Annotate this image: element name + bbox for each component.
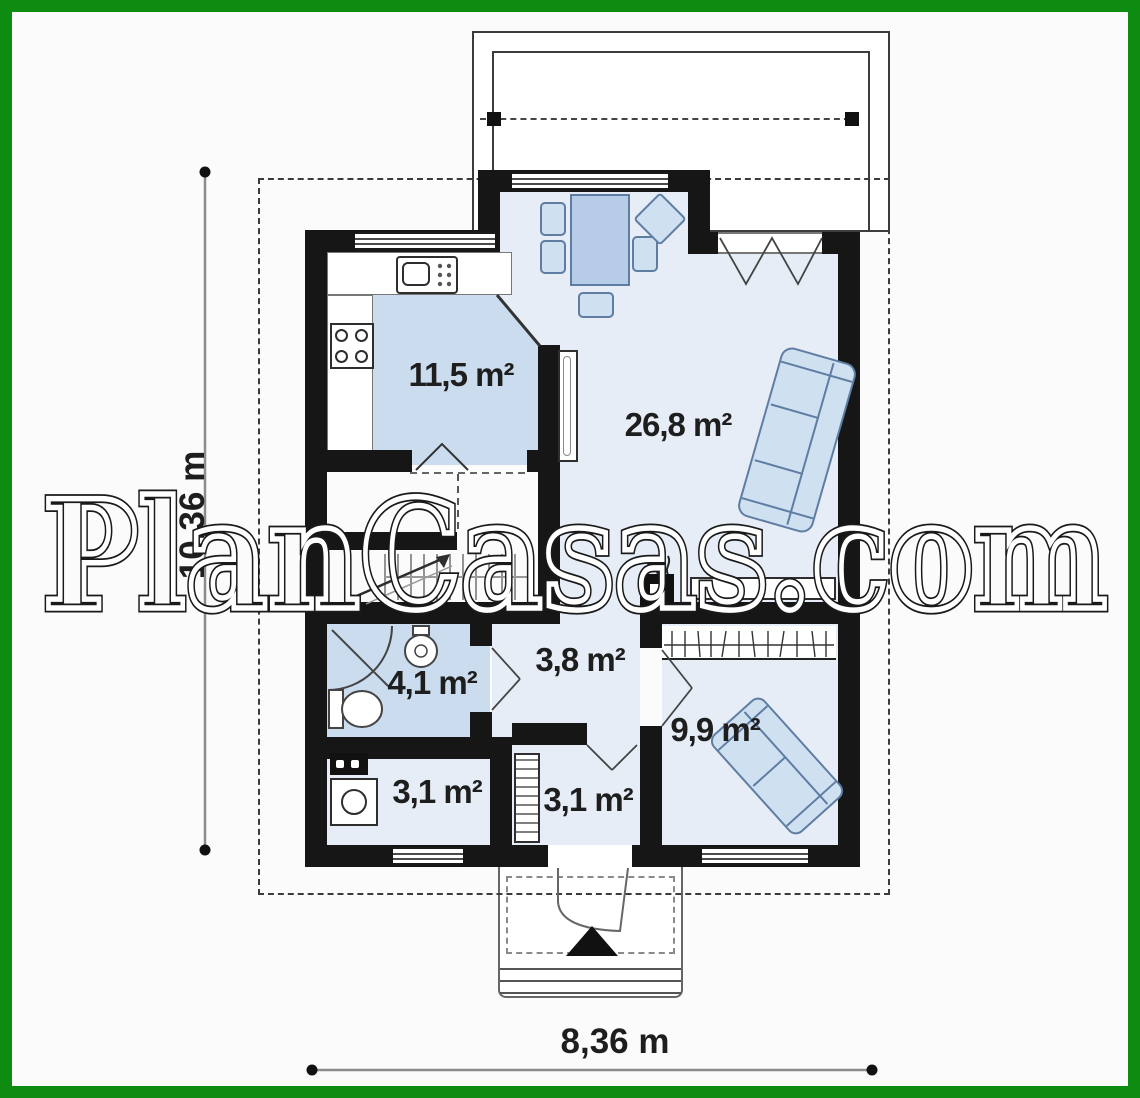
bedroom-left-wall bbox=[640, 726, 662, 845]
kitchen-counter-left bbox=[327, 295, 373, 465]
bedroom-area-label: 9,9 m² bbox=[670, 711, 759, 749]
bedroom-window bbox=[702, 847, 808, 865]
width-dimension-label: 8,36 m bbox=[561, 1022, 670, 1062]
exterior-wall-right bbox=[838, 232, 860, 867]
bathroom-right-wall bbox=[470, 624, 492, 646]
stove-icon bbox=[330, 323, 374, 369]
vestibule-top-wall bbox=[512, 723, 587, 745]
pantry-bottom-wall bbox=[327, 532, 457, 550]
radiator-inner-line bbox=[563, 356, 571, 456]
kitchen-window bbox=[355, 232, 495, 250]
kitchen-living-stub-wall bbox=[538, 345, 560, 624]
stairs-bottom-wall bbox=[327, 602, 560, 624]
dining-table bbox=[570, 194, 630, 286]
vestibule-wardrobe bbox=[514, 753, 540, 843]
burner bbox=[335, 350, 348, 363]
boiler-icon bbox=[330, 753, 368, 775]
bedroom-wardrobe bbox=[662, 626, 836, 660]
exterior-wall-step bbox=[688, 170, 710, 254]
utility-window bbox=[393, 847, 463, 865]
terrace-dashed-line bbox=[480, 118, 850, 120]
dining-chair bbox=[540, 240, 566, 274]
hall-area-label: 3,8 m² bbox=[535, 641, 624, 679]
utility-right-wall bbox=[490, 737, 512, 845]
tv-bench bbox=[690, 577, 836, 600]
porch-step-line bbox=[500, 980, 681, 982]
kitchen-sink-icon bbox=[396, 256, 458, 294]
utility-area-label: 3,1 m² bbox=[392, 773, 481, 811]
fireplace-inner bbox=[650, 584, 664, 598]
width-dimension-line bbox=[307, 1065, 878, 1076]
burner bbox=[355, 329, 368, 342]
porch-step-line bbox=[500, 992, 681, 994]
height-dimension-label: 10,36 m bbox=[173, 451, 213, 579]
dining-chair bbox=[540, 202, 566, 236]
dining-window bbox=[512, 172, 668, 190]
exterior-wall-left bbox=[305, 230, 327, 867]
bathroom-right-wall bbox=[470, 712, 492, 737]
frame-border-bottom bbox=[0, 1086, 1140, 1098]
terrace-door-opening bbox=[718, 232, 822, 254]
frame-border-top bbox=[0, 0, 1140, 12]
burner bbox=[355, 350, 368, 363]
dining-chair bbox=[578, 292, 614, 318]
hall-floor bbox=[560, 602, 640, 624]
dining-chair bbox=[632, 236, 658, 272]
boiler-dot bbox=[336, 760, 344, 768]
washing-machine-drum bbox=[341, 789, 367, 815]
porch-step-line bbox=[500, 968, 681, 970]
radiator bbox=[558, 350, 578, 462]
burner bbox=[335, 329, 348, 342]
entrance-door-opening bbox=[548, 845, 632, 867]
living-area-label: 26,8 m² bbox=[625, 406, 732, 444]
vestibule-area-label: 3,1 m² bbox=[543, 781, 632, 819]
frame-border-left bbox=[0, 0, 12, 1098]
boiler-dot bbox=[351, 760, 359, 768]
bathroom-area-label: 4,1 m² bbox=[387, 664, 476, 702]
sink-basin bbox=[402, 262, 430, 286]
floor-plan-image: 11,5 m² 26,8 m² 3,8 m² 4,1 m² 9,9 m² 3,1… bbox=[0, 0, 1140, 1098]
kitchen-bottom-wall bbox=[305, 450, 412, 472]
terrace-post bbox=[845, 112, 859, 126]
frame-border-right bbox=[1128, 0, 1140, 1098]
terrace-post bbox=[487, 112, 501, 126]
washing-machine-icon bbox=[330, 778, 378, 826]
kitchen-area-label: 11,5 m² bbox=[409, 356, 514, 394]
bedroom-left-wall bbox=[640, 624, 662, 648]
